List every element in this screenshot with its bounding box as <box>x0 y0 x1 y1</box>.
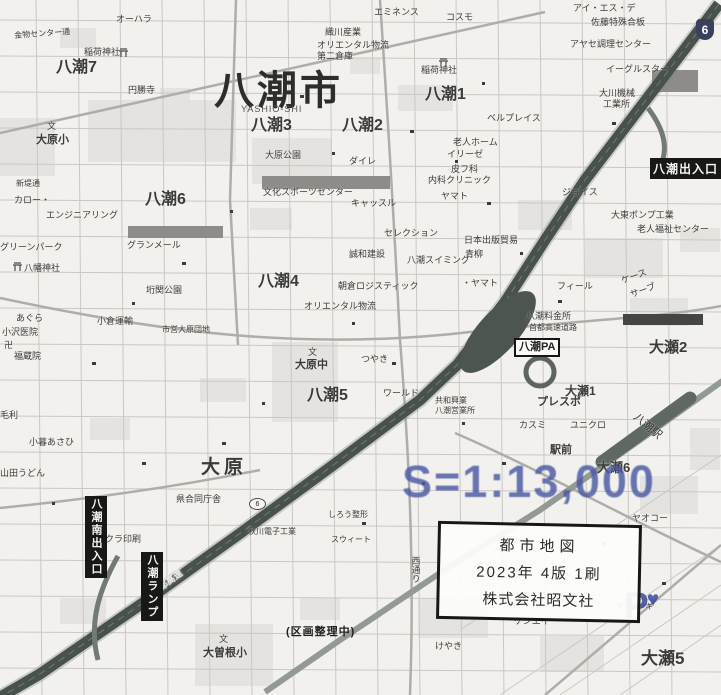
map-label: 八潮駅 <box>631 412 664 442</box>
map-label: 八潮営業所 <box>435 407 475 415</box>
route-number-badge: 6 <box>249 498 266 510</box>
map-label: 大東ポンプ工業 <box>611 211 674 220</box>
interchange-label-box: 八潮南出入口 <box>85 496 107 578</box>
map-label: オーハラ <box>116 15 152 24</box>
map-label: 福蔵院 <box>14 352 41 361</box>
map-label: ベルプレイス <box>487 114 541 123</box>
map-label: 大瀬5 <box>641 650 684 668</box>
route-number-badge: 6 <box>696 19 714 40</box>
map-label: 小沢医院 <box>2 328 38 337</box>
map-label: 市営大原団地 <box>162 326 210 334</box>
map-label: 山田うどん <box>0 469 45 478</box>
map-label: 八潮2 <box>342 118 383 135</box>
map-label: フィール <box>557 282 593 291</box>
map-label: 卍 <box>4 341 13 350</box>
map-label: エミネンス <box>374 8 419 17</box>
map-label: プレスポ <box>537 397 581 409</box>
map-label: カロー・ <box>14 196 50 205</box>
credit-map-series: 都市地図 <box>499 534 579 557</box>
map-label: 八潮3 <box>251 118 292 135</box>
map-label: 八潮6 <box>145 192 186 209</box>
map-label: コスモ <box>446 13 473 22</box>
credit-box: 都市地図 2023年 4版 1刷 株式会社昭文社 <box>436 521 642 623</box>
map-label: 日本出版貿易 <box>464 236 518 245</box>
map-label: 首都高速道路 <box>529 324 577 332</box>
map-label: ワールド <box>383 389 419 398</box>
map-label: グリーンパーク <box>0 243 63 252</box>
map-label: 皮フ科 <box>451 165 478 174</box>
credit-edition: 2023年 4版 1刷 <box>476 560 602 584</box>
map-label: 朝倉ロジスティック <box>338 282 418 291</box>
map-label: 円勝寺 <box>128 86 155 95</box>
map-label: 青柳 <box>465 250 483 259</box>
map-label: ユニクロ <box>570 421 606 430</box>
map-label: 駅前 <box>550 445 572 457</box>
map-label: 共和興業 <box>435 397 467 405</box>
map-label: 八潮5 <box>307 388 348 405</box>
heart-icon: ♥ <box>647 588 659 611</box>
map-label: 内科クリニック <box>428 176 491 185</box>
map-label: 稲荷神社 <box>84 48 120 57</box>
map-label: 大原 <box>201 458 247 478</box>
map-label: しろう整形 <box>328 511 368 519</box>
map-label: 文 <box>219 635 228 644</box>
map-label: けやき <box>435 642 462 651</box>
map-label: 老人福祉センター <box>637 225 709 234</box>
map-label: 文 <box>47 122 56 131</box>
map-label: 工業所 <box>603 100 630 109</box>
city-title-romaji: YASHIO-SHI <box>241 104 302 114</box>
map-label: 文 <box>308 348 317 357</box>
map-label: グランメール <box>127 241 181 250</box>
map-label: つやき <box>361 355 388 364</box>
map-canvas: オーハラ稲荷神社円勝寺金物センター通八潮7文大原小新堤通八潮6カロー・エンジニア… <box>0 0 721 695</box>
map-label: 八幡神社 <box>24 264 60 273</box>
map-label: ジョイス <box>562 188 598 197</box>
map-label: アイ・エス・デ <box>573 4 636 13</box>
map-label: 誠和建設 <box>349 250 385 259</box>
map-label: イリーゼ <box>447 150 483 159</box>
map-label: 新堤通 <box>16 180 40 188</box>
map-label: 垳関公園 <box>146 286 182 295</box>
map-label: 県合同庁舎 <box>176 495 221 504</box>
map-label: 織川産業 <box>325 28 361 37</box>
map-label: 老人ホーム <box>453 138 498 147</box>
parking-area-label: 八潮PA <box>514 338 560 357</box>
scale-text: S=1:13,000 <box>402 456 656 508</box>
map-label: 稲荷神社 <box>421 66 457 75</box>
map-label: 八潮4 <box>258 274 299 291</box>
map-label: あぐら <box>16 314 43 323</box>
map-label: ・ヤマト <box>462 279 498 288</box>
land-readjustment-note: (区画整理中) <box>286 623 355 639</box>
map-label: 大原中 <box>295 360 328 372</box>
map-label: 小暮あさひ <box>29 438 74 447</box>
map-label: 大原小 <box>36 135 69 147</box>
map-label: オリエンタル物流 <box>304 302 376 311</box>
map-label: エンジニアリング <box>46 211 118 220</box>
map-label: カスミ <box>519 421 546 430</box>
map-label: アヤセ調理センター <box>570 40 651 49</box>
map-label: 毛利 <box>0 411 18 420</box>
credit-publisher: 株式会社昭文社 <box>482 587 594 610</box>
map-label: 大瀬2 <box>649 340 687 356</box>
map-label: 八潮料金所 <box>526 312 571 321</box>
map-label: 八潮7 <box>56 60 97 77</box>
map-label: キャッスル <box>351 199 396 208</box>
map-label: スウィート <box>331 536 371 544</box>
map-label: 秋川電子工業 <box>248 528 296 536</box>
map-label: 八潮スイミング <box>407 256 470 265</box>
map-label: 大川機械 <box>599 89 635 98</box>
map-label: 大原公園 <box>265 151 301 160</box>
map-label: ヤマト <box>441 192 468 201</box>
map-label: 金物センター通 <box>14 28 70 40</box>
map-label: サーブ <box>629 282 657 300</box>
map-label: 八潮1 <box>425 87 466 104</box>
interchange-label-box: 八潮出入口 <box>650 158 721 179</box>
interchange-label-box: 八潮ランプ <box>141 552 163 621</box>
map-label: 小倉運輸 <box>97 317 133 326</box>
map-label: オリエンタル物流 <box>317 41 389 50</box>
map-label: セレクション <box>384 229 438 238</box>
map-label: イーグルスター <box>606 65 669 74</box>
map-label: 大曽根小 <box>203 648 247 660</box>
map-label: 佐藤特殊合板 <box>591 18 645 27</box>
map-label: 文化スポーツセンター <box>263 188 353 197</box>
map-label: ヤオコー <box>632 514 668 523</box>
map-label: ダイレ <box>349 157 376 166</box>
map-label: 西通り <box>410 556 419 583</box>
